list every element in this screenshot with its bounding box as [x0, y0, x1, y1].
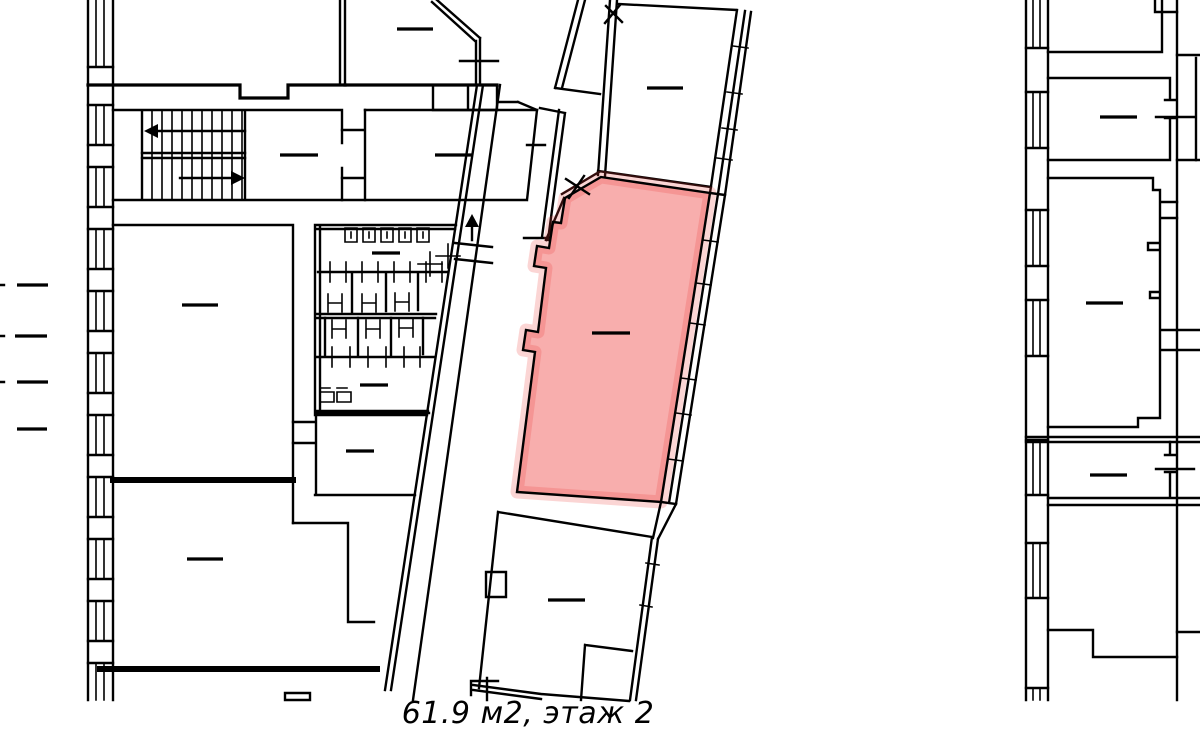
bathroom-block	[315, 225, 456, 415]
room-below-highlight	[471, 502, 676, 701]
floor-plan-viewer: 61.9 м2, этаж 2	[0, 0, 1200, 745]
room-top-left	[88, 0, 345, 98]
corridor-arrow-up-icon	[465, 214, 479, 227]
staircase	[113, 110, 342, 200]
highlighted-room-group	[517, 176, 725, 504]
room-top-middle	[345, 0, 537, 110]
room-left-lower	[100, 523, 377, 700]
caption: 61.9 м2, этаж 2	[0, 696, 1056, 731]
margin-ticks	[0, 285, 48, 429]
room-mid-small	[293, 413, 429, 495]
room-above-highlight	[562, 0, 751, 195]
right-building	[1026, 0, 1200, 700]
highlighted-room[interactable]	[517, 177, 710, 502]
floor-plan-svg	[0, 0, 1200, 745]
room-right-of-stairs	[342, 108, 565, 240]
left-exterior-wall	[88, 0, 113, 700]
room-left-upper	[113, 225, 293, 523]
stair-arrow-down-icon	[231, 171, 245, 185]
stair-arrow-up-icon	[144, 124, 158, 138]
